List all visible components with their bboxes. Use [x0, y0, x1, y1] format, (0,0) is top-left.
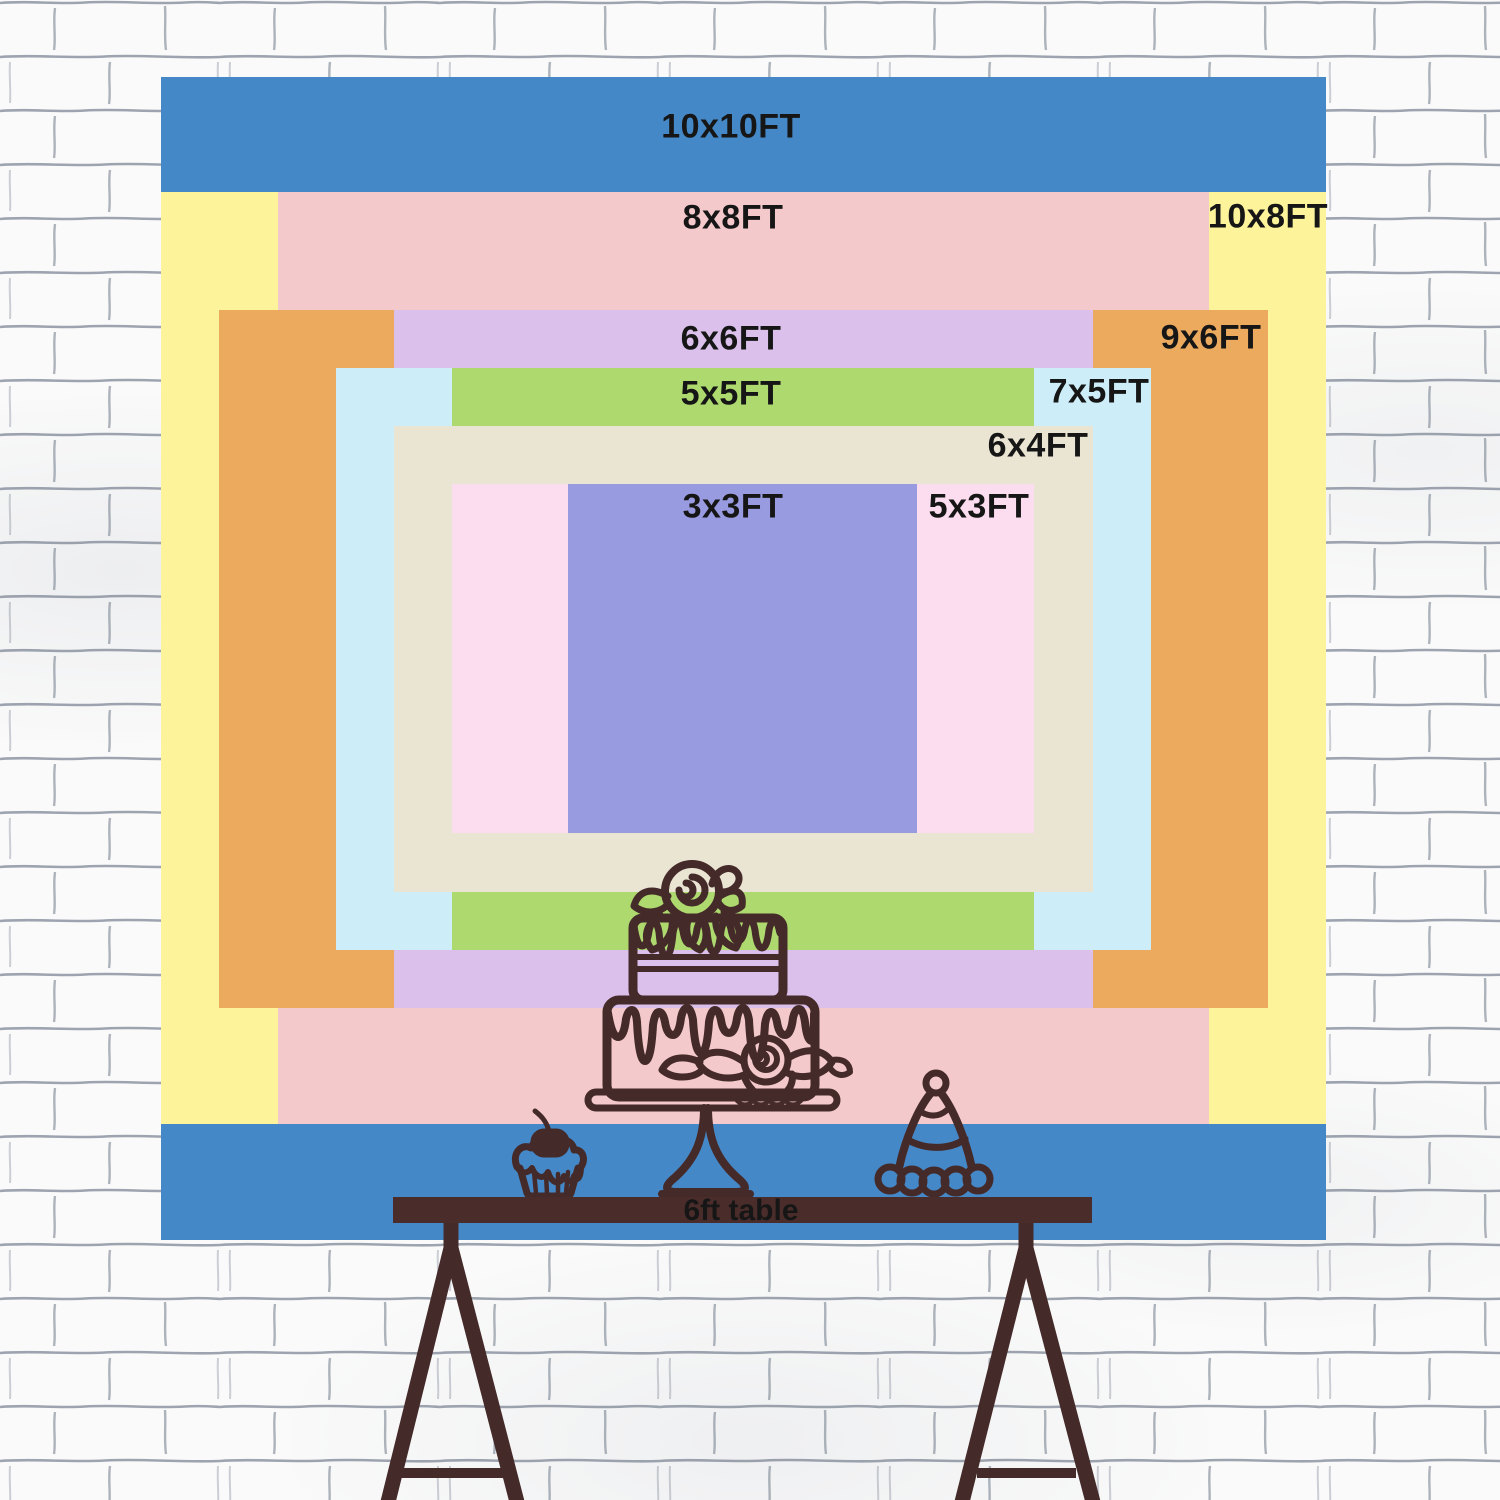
table-leg-left [388, 1200, 517, 1500]
party-hat-icon [878, 1073, 990, 1194]
cake-icon [588, 864, 850, 1194]
table-leg-right [962, 1200, 1093, 1500]
table-size-label: 6ft table [683, 1194, 798, 1228]
cupcake-icon [515, 1111, 583, 1196]
party-table-illustration [0, 0, 1500, 1500]
backdrop-size-chart: 10x10FT 10x8FT 8x8FT 9x6FT 6x6FT 7x5FT 5… [0, 0, 1500, 1500]
